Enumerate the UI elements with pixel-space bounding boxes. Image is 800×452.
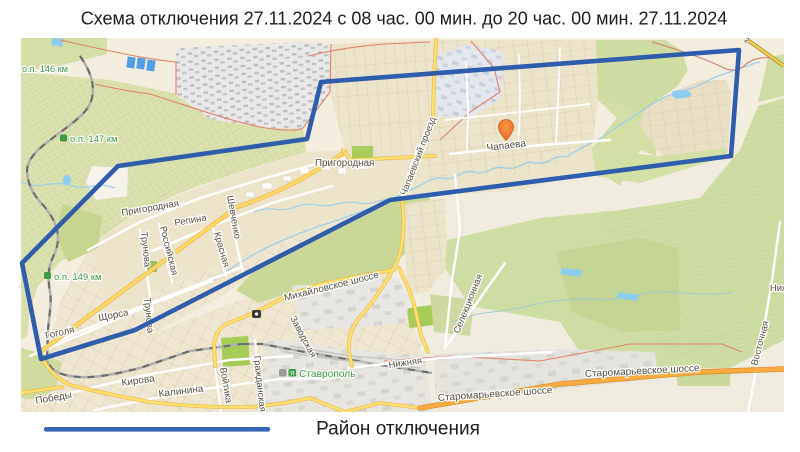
svg-text:о.п. 147 км: о.п. 147 км	[70, 134, 118, 145]
svg-text:Я: Я	[290, 370, 295, 377]
svg-text:Район отключения: Район отключения	[316, 419, 480, 440]
svg-text:Ставрополь: Ставрополь	[299, 369, 356, 380]
svg-text:Пригородная: Пригородная	[315, 158, 374, 169]
svg-text:о.п. 149 км: о.п. 149 км	[54, 272, 102, 283]
svg-text:Схема отключения 27.11.2024 с: Схема отключения 27.11.2024 с 08 час. 00…	[81, 9, 728, 29]
svg-text:о.п. 146 км: о.п. 146 км	[22, 64, 68, 74]
svg-text:Нижняя: Нижняя	[770, 282, 800, 293]
